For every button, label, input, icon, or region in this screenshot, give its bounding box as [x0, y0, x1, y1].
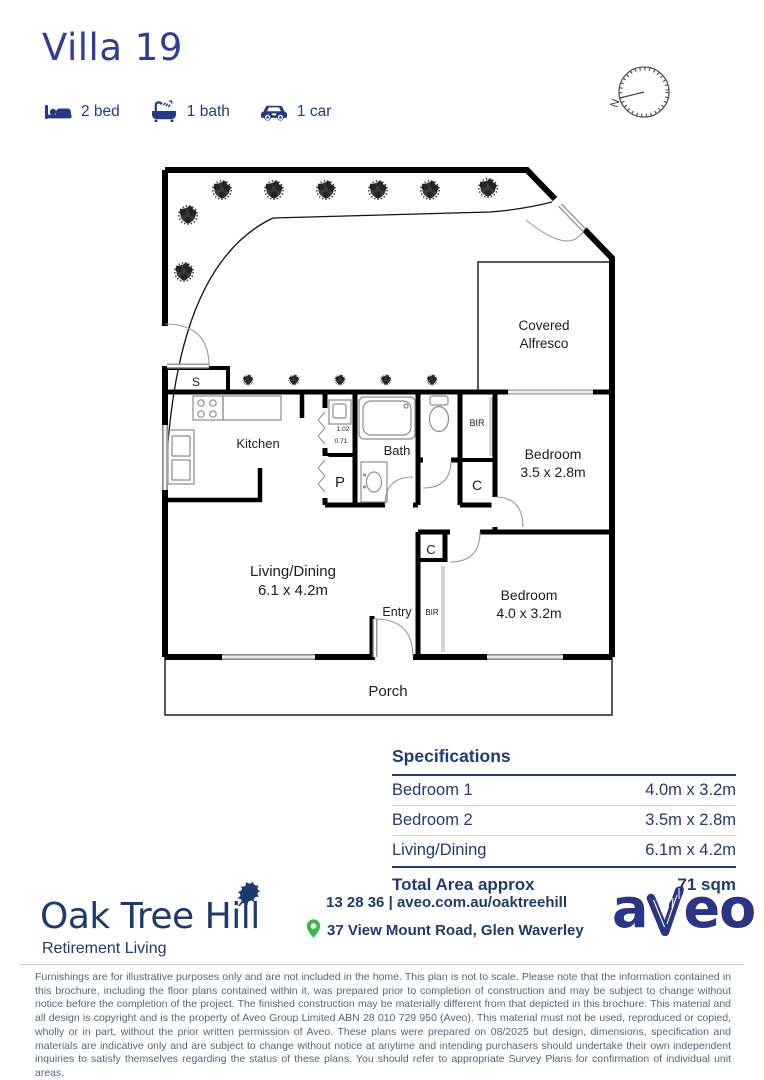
- aveo-leaf-v-icon: [646, 886, 684, 936]
- phone-number: 13 28 36: [326, 894, 384, 911]
- room-size-bedroom1: 4.0 x 3.2m: [496, 605, 561, 621]
- spec-row-living: Living/Dining 6.1m x 4.2m: [392, 836, 736, 865]
- dim-label-depth: 0.71: [335, 438, 348, 445]
- room-size-bedroom2: 3.5 x 2.8m: [520, 464, 585, 480]
- room-label-closet-hall: C: [472, 477, 482, 493]
- room-label-storage: S: [192, 375, 200, 389]
- specifications-table: Specifications Bedroom 1 4.0m x 3.2m Bed…: [392, 746, 736, 895]
- room-label-kitchen: Kitchen: [236, 436, 279, 451]
- spec-name: Living/Dining: [392, 841, 486, 860]
- room-label-entry: Entry: [382, 605, 412, 619]
- room-label-alfresco-2: Alfresco: [520, 336, 569, 351]
- car-icon: [260, 103, 288, 121]
- contact-phone-line: 13 28 36 | aveo.com.au/oaktreehill: [326, 894, 584, 911]
- room-label-bir-top: BIR: [469, 418, 485, 428]
- feature-beds-label: 2 bed: [81, 103, 120, 121]
- spec-value: 3.5m x 2.8m: [645, 811, 736, 830]
- community-tagline: Retirement Living: [42, 940, 167, 958]
- spec-value: 4.0m x 3.2m: [645, 781, 736, 800]
- feature-cars: 1 car: [260, 103, 331, 121]
- footer-divider: [20, 964, 744, 965]
- contact-address-line: 37 View Mount Road, Glen Waverley: [306, 918, 584, 943]
- floorplan-brochure-page: Villa 19 2 bed: [0, 0, 764, 1080]
- specifications-heading: Specifications: [392, 746, 736, 776]
- website-link[interactable]: aveo.com.au/oaktreehill: [397, 894, 567, 911]
- spec-name: Bedroom 1: [392, 781, 473, 800]
- spec-name: Bedroom 2: [392, 811, 473, 830]
- room-label-living: Living/Dining: [250, 563, 336, 580]
- spec-value: 6.1m x 4.2m: [645, 841, 736, 860]
- room-label-porch: Porch: [368, 683, 407, 700]
- aveo-logo: a eo: [612, 882, 755, 936]
- feature-baths: 1 bath: [150, 100, 230, 123]
- disclaimer-text: Furnishings are for illustrative purpose…: [35, 971, 731, 1080]
- feature-cars-label: 1 car: [297, 103, 331, 121]
- room-size-living: 6.1 x 4.2m: [258, 582, 328, 599]
- street-address: 37 View Mount Road, Glen Waverley: [327, 922, 584, 939]
- bed-icon: [44, 102, 72, 122]
- spec-total-name: Total Area approx: [392, 875, 535, 895]
- compass-icon: N: [607, 54, 679, 137]
- room-label-bir-entry: BIR: [425, 608, 439, 617]
- aveo-logo-a: a: [612, 882, 647, 936]
- contact-block: 13 28 36 | aveo.com.au/oaktreehill 37 Vi…: [306, 894, 584, 943]
- room-label-bedroom2: Bedroom: [525, 446, 582, 462]
- location-pin-icon: [306, 918, 321, 943]
- dim-label-width: 1.02: [337, 426, 350, 433]
- spec-row-bedroom2: Bedroom 2 3.5m x 2.8m: [392, 806, 736, 836]
- room-label-bedroom1: Bedroom: [501, 587, 558, 603]
- page-title: Villa 19: [42, 26, 183, 69]
- room-label-closet-entry: C: [426, 542, 435, 557]
- community-logo-text: Oak Tree Hill: [40, 896, 260, 937]
- feature-summary: 2 bed 1 bath: [44, 100, 331, 123]
- room-label-bath: Bath: [384, 443, 411, 458]
- floor-plan: S Kitchen P Bath BIR C C BIR Entry Livin…: [155, 160, 625, 727]
- bath-icon: [150, 100, 178, 123]
- feature-baths-label: 1 bath: [187, 103, 230, 121]
- separator: |: [389, 894, 393, 911]
- room-label-alfresco-1: Covered: [518, 318, 569, 333]
- aveo-logo-eo: eo: [683, 882, 755, 936]
- room-label-pantry: P: [335, 474, 345, 491]
- spec-row-bedroom1: Bedroom 1 4.0m x 3.2m: [392, 776, 736, 806]
- feature-beds: 2 bed: [44, 102, 120, 122]
